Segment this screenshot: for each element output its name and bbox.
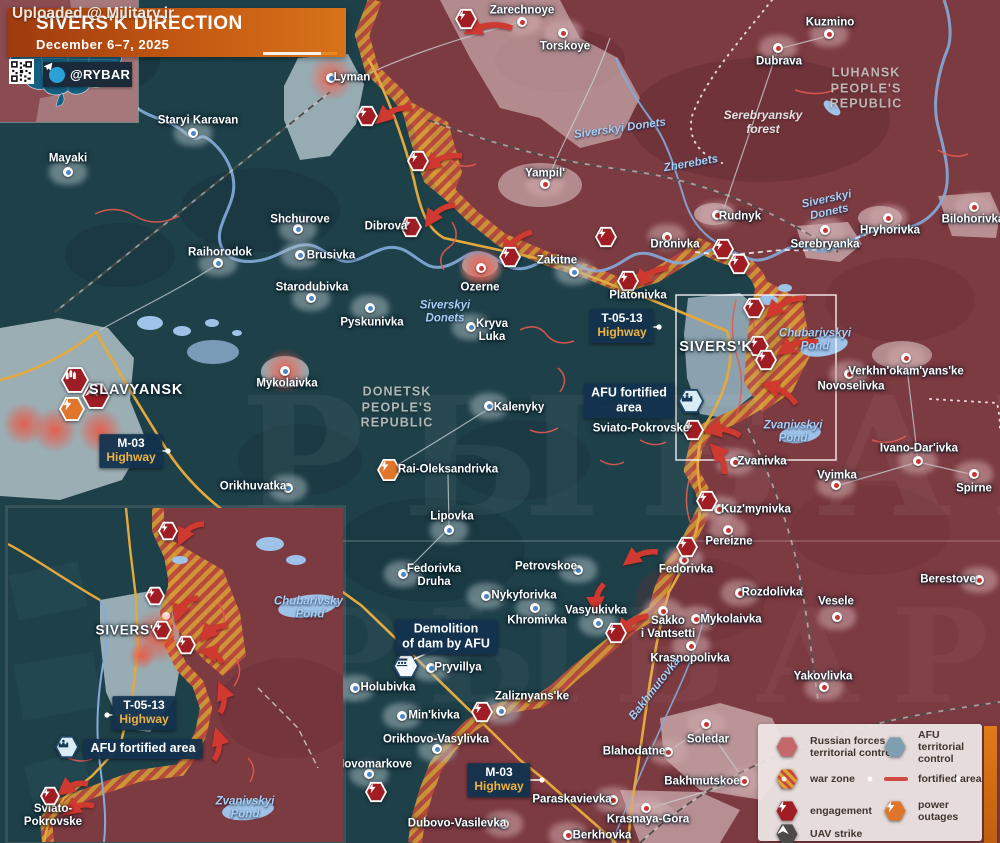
engagement-legend-hex-fill — [777, 801, 798, 822]
uav-legend-hex — [777, 824, 798, 843]
power-legend-hex — [885, 801, 906, 822]
legend-item-uav: UAV strike — [776, 823, 862, 843]
legend-item-warzone: war zone — [776, 768, 855, 790]
uav-legend-icon — [776, 823, 802, 843]
power-legend-hex-fill — [885, 801, 906, 822]
map-date: December 6–7, 2025 — [36, 37, 169, 52]
legend-item-label: UAV strike — [810, 828, 862, 840]
afu-legend-hex — [885, 737, 906, 758]
legend-item-afu: AFU territorial control — [884, 729, 982, 765]
warzone-legend-hex-fill — [777, 769, 798, 790]
russian-legend-hex-fill — [777, 737, 798, 758]
warzone-legend-icon — [776, 768, 802, 790]
engagement-legend-icon — [776, 800, 802, 822]
legend-item-label: power outages — [918, 799, 982, 823]
engagement-legend-hex — [777, 801, 798, 822]
legend-item-label: engagement — [810, 805, 872, 817]
qr-code — [9, 59, 34, 84]
uploader-watermark: Uploaded @ Military.ir — [12, 5, 174, 23]
power-legend-icon — [884, 800, 910, 822]
fortified-line-swatch — [884, 777, 908, 781]
inset-city-point — [162, 612, 170, 620]
map-screenshot: РЫБАРЬ РЫБАРЬ LymanZarechnoyeTorskoyeKuz… — [0, 0, 1000, 843]
legend-item-fortline: fortified area — [884, 768, 982, 790]
inset-terrain — [8, 508, 343, 842]
telegram-icon — [49, 67, 65, 83]
siversk-detail-inset: SIVERS'KSviato- PokrovskeChubarivskyi Po… — [8, 508, 343, 842]
legend-item-label: AFU territorial control — [918, 729, 982, 765]
legend-side-bar — [984, 726, 997, 843]
banner-progress-line — [263, 52, 337, 55]
russian-legend-icon — [776, 736, 802, 758]
afu-legend-icon — [884, 736, 910, 758]
channel-name: @RYBAR — [70, 67, 130, 82]
legend-item-label: war zone — [810, 773, 855, 785]
fortline-legend-icon — [884, 768, 910, 790]
rybar-channel-badge: @RYBAR — [43, 62, 132, 87]
legend-item-engagement: engagement — [776, 800, 872, 822]
uav-legend-hex-fill — [777, 824, 798, 843]
russian-legend-hex — [777, 737, 798, 758]
legend-item-power: power outages — [884, 799, 982, 823]
legend-item-label: fortified area — [918, 773, 982, 785]
legend-item-label: Russian forces territorial control — [810, 735, 895, 759]
warzone-legend-hex — [777, 769, 798, 790]
legend-item-russian: Russian forces territorial control — [776, 735, 895, 759]
legend: Russian forces territorial controlAFU te… — [758, 724, 982, 841]
afu-legend-hex-fill — [885, 737, 906, 758]
